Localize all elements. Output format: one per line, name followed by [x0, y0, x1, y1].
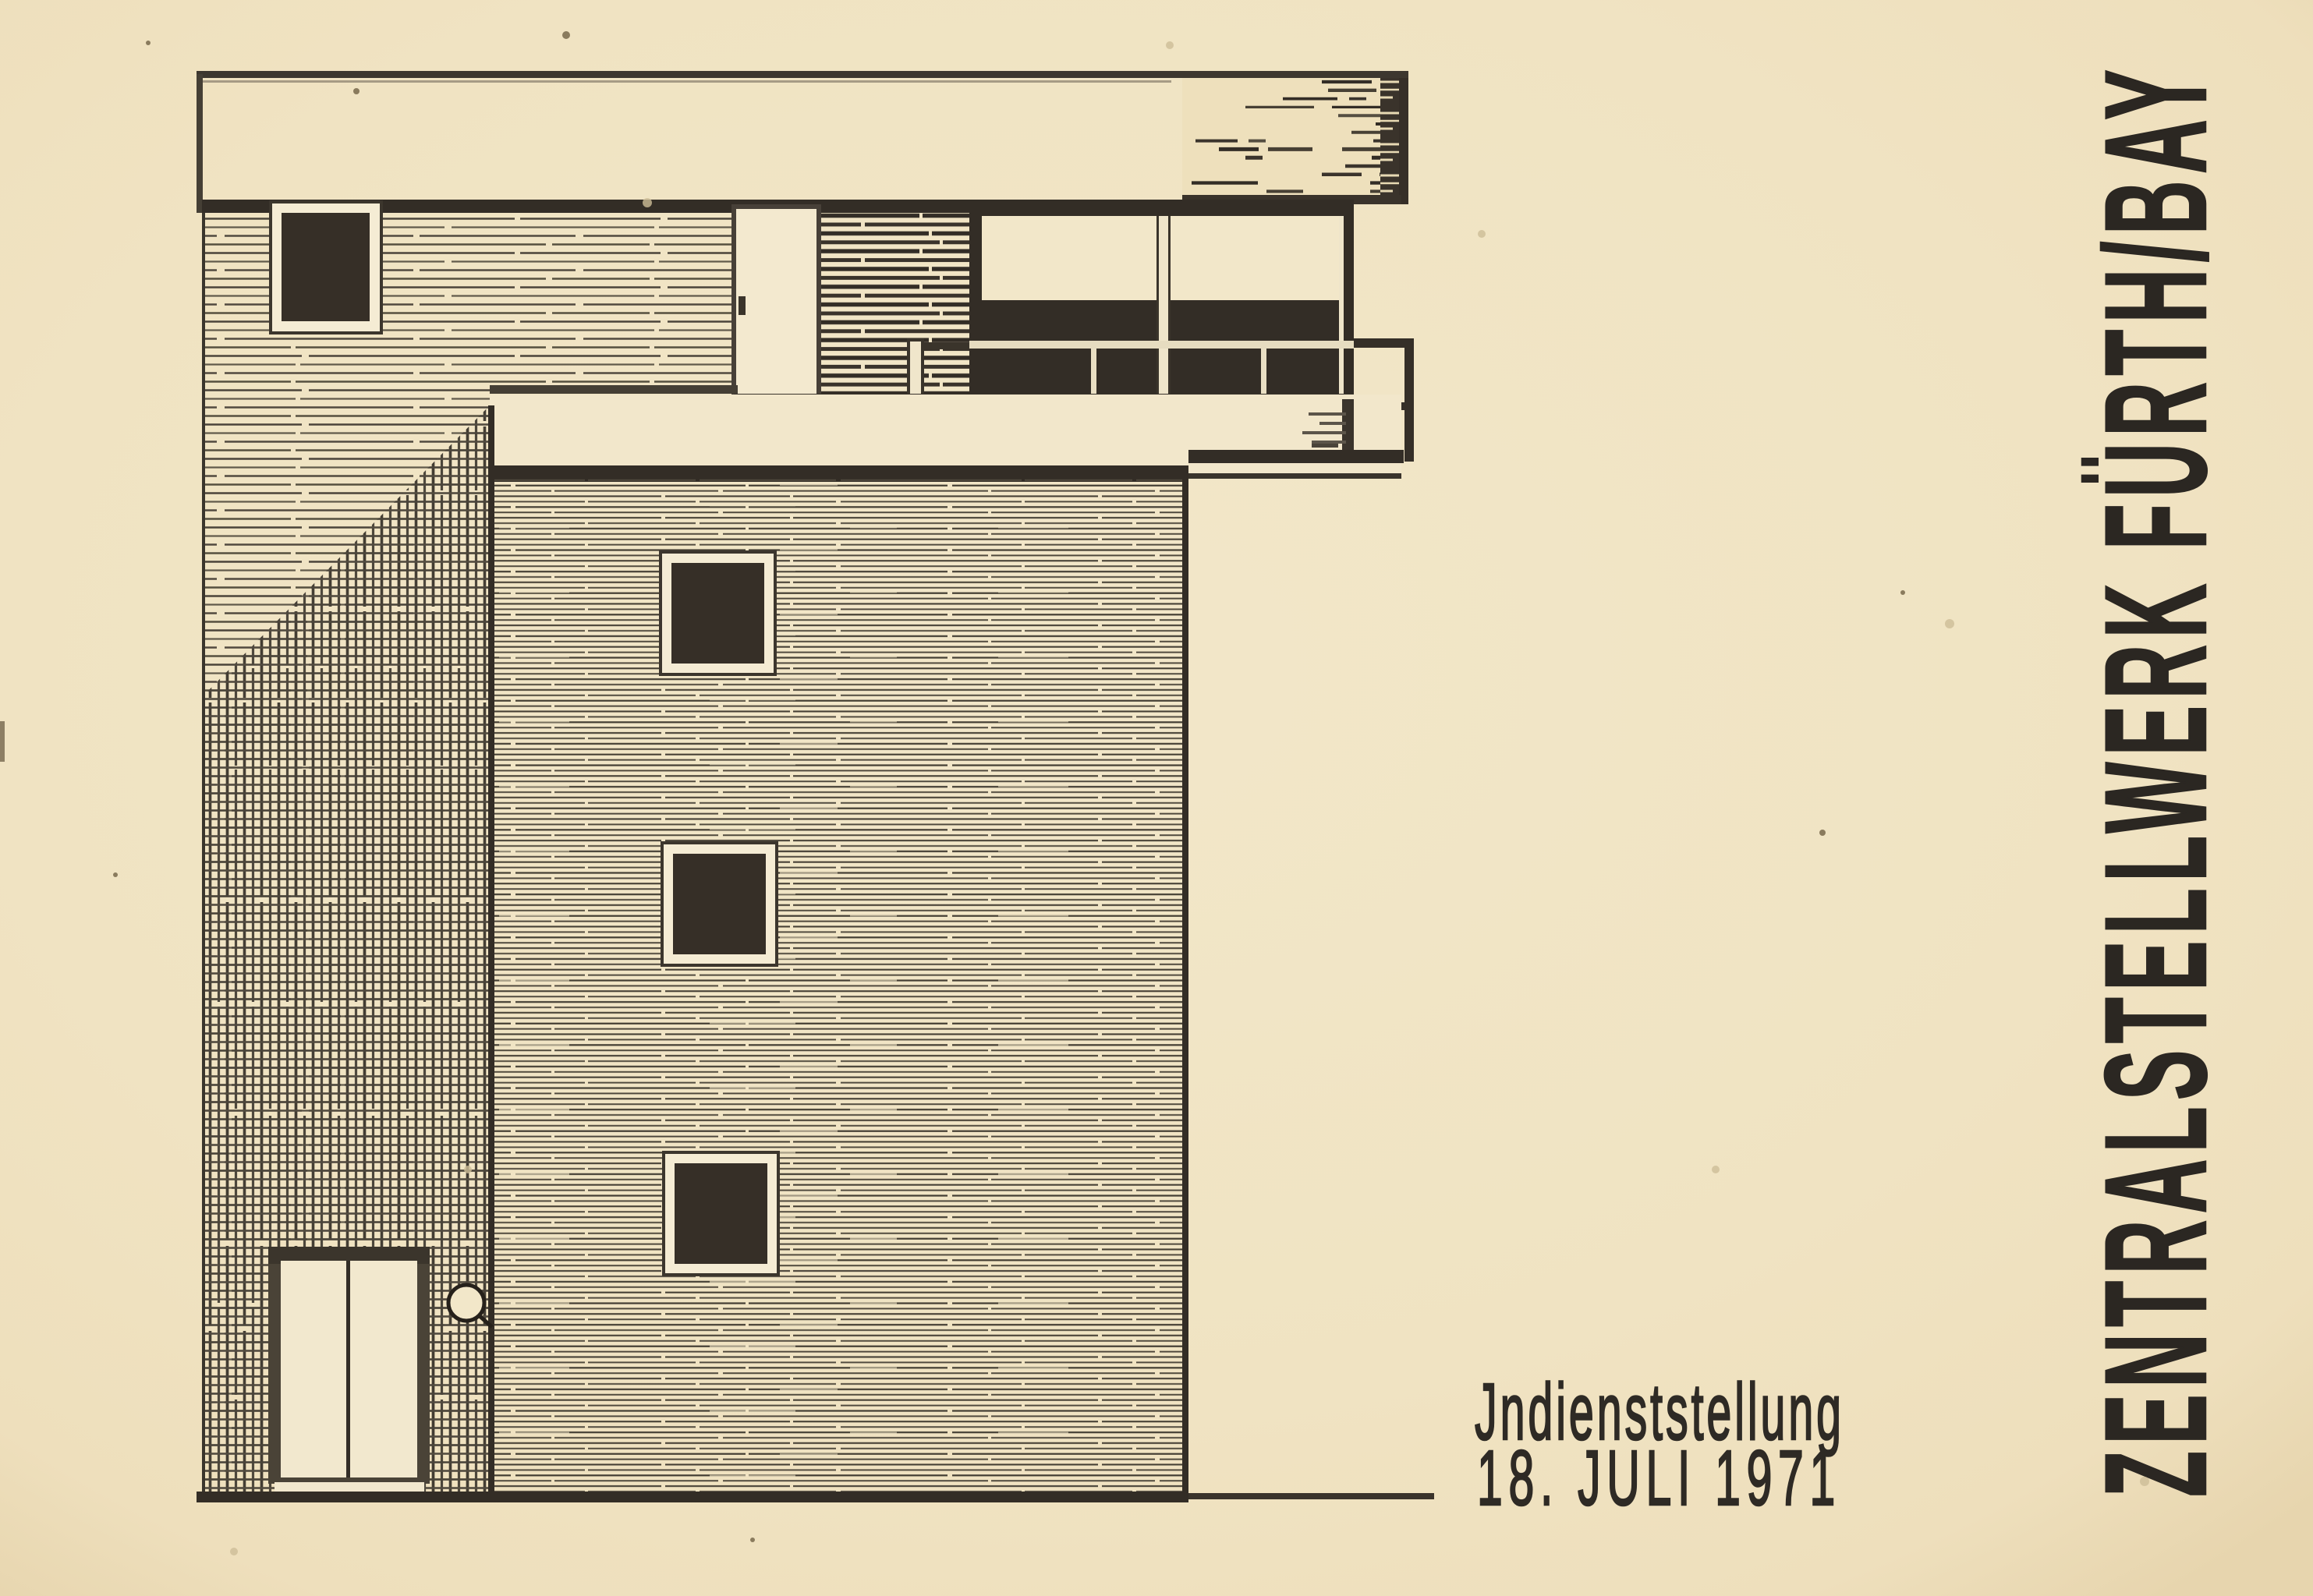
svg-text:ZENTRALSTELLWERK FÜRTH/BAY: ZENTRALSTELLWERK FÜRTH/BAY — [2076, 63, 2237, 1497]
svg-text:18. JULI 1971: 18. JULI 1971 — [1477, 1435, 1841, 1522]
